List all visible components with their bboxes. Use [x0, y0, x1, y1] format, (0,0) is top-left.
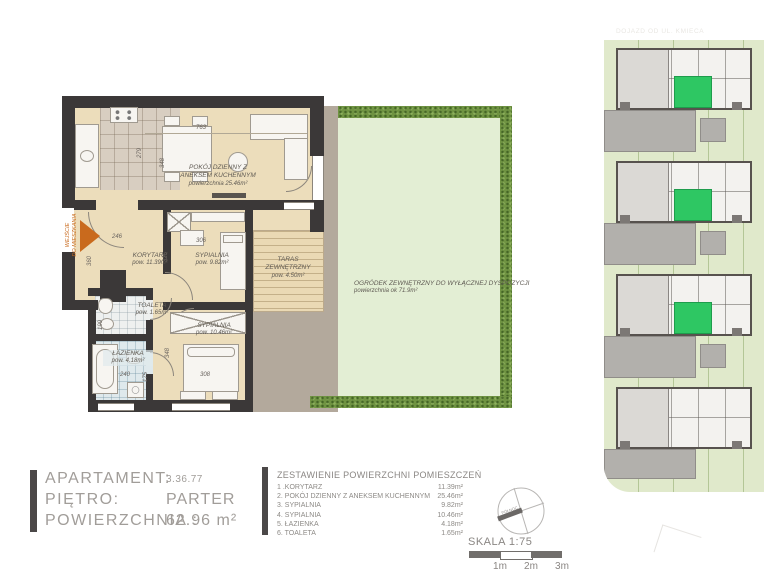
courtyard-square	[700, 344, 726, 368]
scale-tick: 2m	[520, 561, 542, 572]
room-label-bedroom2: SYPIALNIA pow. 10.46m²	[184, 322, 244, 338]
site-map-block	[604, 274, 764, 387]
schedule-room-area: 9.82m²	[441, 502, 463, 510]
pillow-bedroom2	[187, 347, 235, 357]
site-map-block	[604, 161, 764, 274]
room-name: ŁAZIENKA	[103, 350, 153, 358]
info-divider-bar	[30, 470, 37, 532]
courtyard-square	[700, 231, 726, 255]
dimension-label: 306	[196, 238, 206, 244]
building-stub	[620, 215, 630, 223]
dimension-label: 308	[200, 372, 210, 378]
room-area: pow. 9.82m²	[182, 260, 242, 268]
wall-right-upper	[310, 96, 324, 156]
toilet-wc	[98, 298, 113, 314]
room-area: pow. 4.50m²	[262, 273, 314, 281]
courtyard-square	[700, 118, 726, 142]
hedge-right	[500, 106, 512, 408]
dimension-label: 348	[165, 348, 171, 358]
room-label-living: POKÓJ DZIENNY Z ANEKSEM KUCHENNYM powier…	[168, 164, 268, 189]
entrance-label: WEJŚCIE DO MIESZKANIA	[65, 203, 79, 267]
scale-tick: 3m	[551, 561, 573, 572]
wall-bath-top	[88, 334, 153, 341]
courtyard-path	[604, 110, 696, 152]
schedule-room-name: 3. SYPIALNIA	[277, 502, 321, 510]
apartment-floor-plan: WEJŚCIE DO MIESZKANIA 763 279 348 246 30…	[0, 0, 560, 460]
shelf-bedroom1	[191, 212, 245, 222]
building-stub	[620, 328, 630, 336]
room-name: ANEKSEM KUCHENNYM	[168, 172, 268, 180]
wardrobe-bedroom1	[167, 212, 191, 232]
compass-icon: PÓŁNOC	[495, 485, 547, 537]
building-stub	[732, 328, 742, 336]
scale-label: SKALA 1:75	[468, 536, 532, 548]
site-location-map: DOJAZD OD UL. KMIECA	[602, 25, 768, 565]
building-wing	[618, 276, 669, 334]
schedule-table: 1 .KORYTARZ 11.39m² 2. POKÓJ DZIENNY Z A…	[277, 484, 463, 538]
dimension-label: 360	[87, 256, 93, 266]
dining-chair	[164, 116, 180, 126]
entrance-label-line2: DO MIESZKANIA	[72, 203, 79, 267]
building-stub	[732, 215, 742, 223]
schedule-divider-bar	[262, 467, 268, 535]
entrance-label-line1: WEJŚCIE	[65, 203, 72, 267]
dimension-label: 246	[112, 234, 122, 240]
schedule-room-name: 4. SYPIALNIA	[277, 512, 321, 520]
dimension-label: 240	[120, 372, 130, 378]
room-label-bathroom: ŁAZIENKA pow. 4.18m²	[103, 350, 153, 366]
schedule-room-area: 11.39m²	[438, 484, 463, 492]
schedule-room-area: 25.46m²	[437, 493, 463, 501]
room-name: TARAS	[262, 256, 314, 264]
garden-label: OGRÓDEK ZEWNĘTRZNY DO WYŁĄCZNEJ DYSPOZYC…	[354, 280, 504, 296]
room-area: pow. 1.65m²	[126, 310, 178, 318]
room-label-toilet: TOALETA pow. 1.65m²	[126, 302, 178, 318]
room-name: SYPIALNIA	[182, 252, 242, 260]
bench-cushion	[180, 391, 206, 400]
scale-tick: 1m	[489, 561, 511, 572]
highlighted-unit	[674, 189, 712, 221]
room-area: pow. 11.39m²	[118, 260, 182, 268]
room-name: ZEWNĘTRZNY	[262, 264, 314, 272]
bench-cushion	[212, 391, 238, 400]
dimension-label: 763	[196, 125, 206, 131]
opening-living-hall	[96, 200, 138, 210]
scale-bar-segment	[469, 551, 500, 558]
apartment-value: 3.36.77	[166, 474, 203, 485]
schedule-room-area: 1.65m²	[441, 530, 463, 538]
wall-top	[62, 96, 324, 108]
highlighted-unit	[674, 76, 712, 108]
room-name: TOALETA	[126, 302, 178, 310]
terrace-door-glass	[284, 202, 314, 210]
room-name: KORYTARZ	[118, 252, 182, 260]
map-margin-sketch	[654, 524, 702, 564]
schedule-room-name: 1 .KORYTARZ	[277, 484, 322, 492]
pillow-bedroom1	[223, 235, 243, 243]
highlighted-unit	[674, 302, 712, 334]
scale-bar-segment	[531, 551, 562, 558]
window-bathroom	[98, 403, 134, 411]
room-area: pow. 10.46m²	[184, 330, 244, 338]
kitchen-sink	[80, 150, 94, 162]
hedge-top	[338, 106, 512, 118]
schedule-row: 6. TOALETA 1.65m²	[277, 530, 463, 538]
window-living-right	[312, 156, 324, 202]
schedule-row: 5. ŁAZIENKA 4.18m²	[277, 521, 463, 529]
schedule-room-area: 10.46m²	[437, 512, 463, 520]
site-map-road-label: DOJAZD OD UL. KMIECA	[616, 28, 704, 35]
building-wing	[618, 389, 669, 447]
garden-area: powierzchnia ok 71.9m²	[354, 288, 504, 296]
site-map-block	[604, 387, 764, 492]
schedule-row: 1 .KORYTARZ 11.39m²	[277, 484, 463, 492]
floor-label: PIĘTRO:	[45, 491, 120, 509]
schedule-row: 3. SYPIALNIA 9.82m²	[277, 502, 463, 510]
building-wing	[618, 50, 669, 108]
courtyard-path	[604, 223, 696, 265]
window-bedroom2	[172, 403, 230, 411]
room-area: powierzchnia 25.46m²	[168, 181, 268, 189]
sofa-horizontal	[250, 114, 308, 140]
schedule-title: ZESTAWIENIE POWIERZCHNI POMIESZCZEŃ	[277, 470, 482, 480]
courtyard-path	[604, 336, 696, 378]
schedule-room-name: 6. TOALETA	[277, 530, 316, 538]
site-map-area	[604, 40, 764, 492]
garden-name: OGRÓDEK ZEWNĘTRZNY DO WYŁĄCZNEJ DYSPOZYC…	[354, 280, 504, 288]
building-wing	[618, 163, 669, 221]
schedule-room-name: 5. ŁAZIENKA	[277, 521, 319, 529]
building-stub	[732, 102, 742, 110]
scale-bar-segment	[500, 551, 533, 560]
dimension-line	[145, 133, 307, 134]
site-map-block	[604, 48, 764, 161]
dimension-label: 175	[143, 372, 149, 382]
schedule-room-name: 2. POKÓJ DZIENNY Z ANEKSEM KUCHENNYM	[277, 493, 430, 501]
tv-shelf	[212, 193, 246, 198]
area-value: 62.96 m²	[166, 512, 237, 530]
schedule-room-area: 4.18m²	[441, 521, 463, 529]
dimension-label: 199	[98, 320, 104, 330]
building-stub	[732, 441, 742, 449]
room-label-hall: KORYTARZ pow. 11.39m²	[118, 252, 182, 268]
wall-toilet-top	[88, 288, 152, 296]
schedule-row: 4. SYPIALNIA 10.46m²	[277, 512, 463, 520]
floor-plan-sheet: WEJŚCIE DO MIESZKANIA 763 279 348 246 30…	[0, 0, 768, 586]
building-stub	[620, 441, 630, 449]
stove	[110, 107, 138, 123]
room-label-terrace: TARAS ZEWNĘTRZNY pow. 4.50m²	[262, 256, 314, 281]
washing-machine	[127, 382, 144, 398]
floor-value: PARTER	[166, 491, 235, 509]
hedge-bottom	[310, 396, 512, 408]
building-stub	[620, 102, 630, 110]
dimension-label: 279	[137, 148, 143, 158]
courtyard-path	[604, 449, 696, 479]
wall-left-upper	[62, 96, 75, 208]
dimension-label: 348	[160, 158, 166, 168]
floor-mask	[50, 306, 88, 412]
room-name: SYPIALNIA	[184, 322, 244, 330]
schedule-row: 2. POKÓJ DZIENNY Z ANEKSEM KUCHENNYM 25.…	[277, 493, 463, 501]
room-area: pow. 4.18m²	[103, 358, 153, 366]
sofa-vertical	[284, 138, 308, 180]
room-name: POKÓJ DZIENNY Z	[168, 164, 268, 172]
room-label-bedroom1: SYPIALNIA pow. 9.82m²	[182, 252, 242, 268]
apartment-label: APARTAMENT:	[45, 470, 171, 488]
garden-lawn	[338, 116, 502, 398]
